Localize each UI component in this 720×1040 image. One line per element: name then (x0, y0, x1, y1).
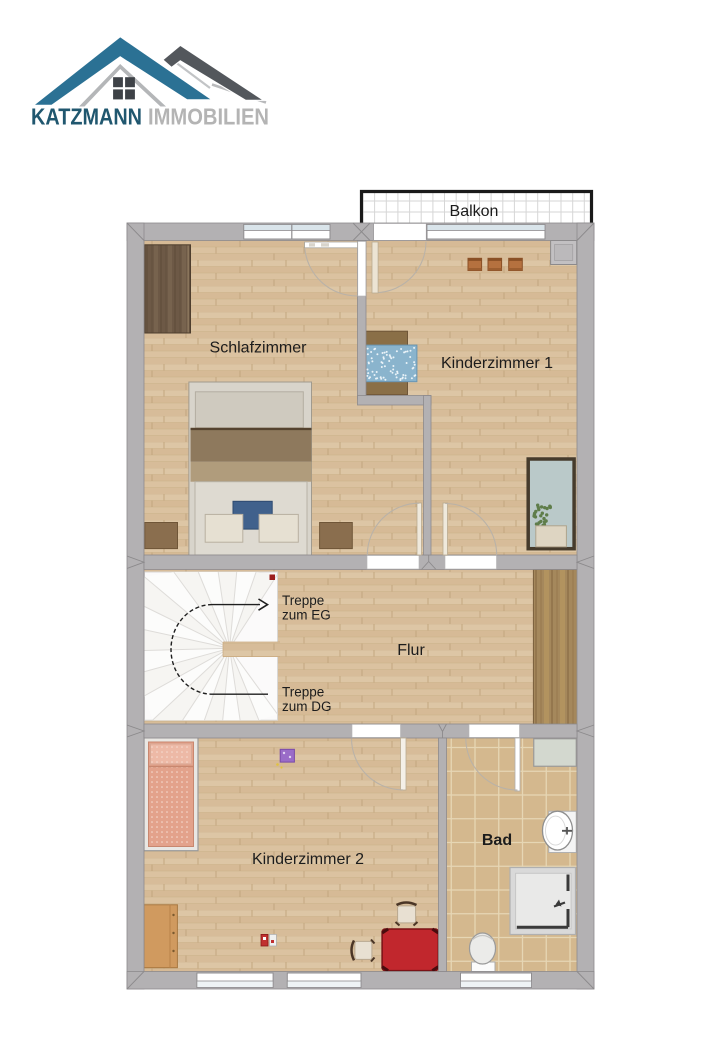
svg-text:KATZMANN: KATZMANN (31, 104, 142, 130)
svg-text:Treppe: Treppe (282, 685, 324, 700)
svg-text:Kinderzimmer 1: Kinderzimmer 1 (441, 355, 553, 372)
svg-text:Schlafzimmer: Schlafzimmer (210, 340, 308, 357)
svg-text:Flur: Flur (397, 642, 425, 659)
svg-text:zum EG: zum EG (282, 608, 331, 623)
svg-text:Balkon: Balkon (450, 203, 499, 220)
svg-text:Kinderzimmer 2: Kinderzimmer 2 (252, 851, 364, 868)
svg-text:Treppe: Treppe (282, 593, 324, 608)
svg-text:Bad: Bad (482, 832, 512, 849)
svg-text:IMMOBILIEN: IMMOBILIEN (148, 104, 269, 130)
svg-text:zum DG: zum DG (282, 699, 332, 714)
